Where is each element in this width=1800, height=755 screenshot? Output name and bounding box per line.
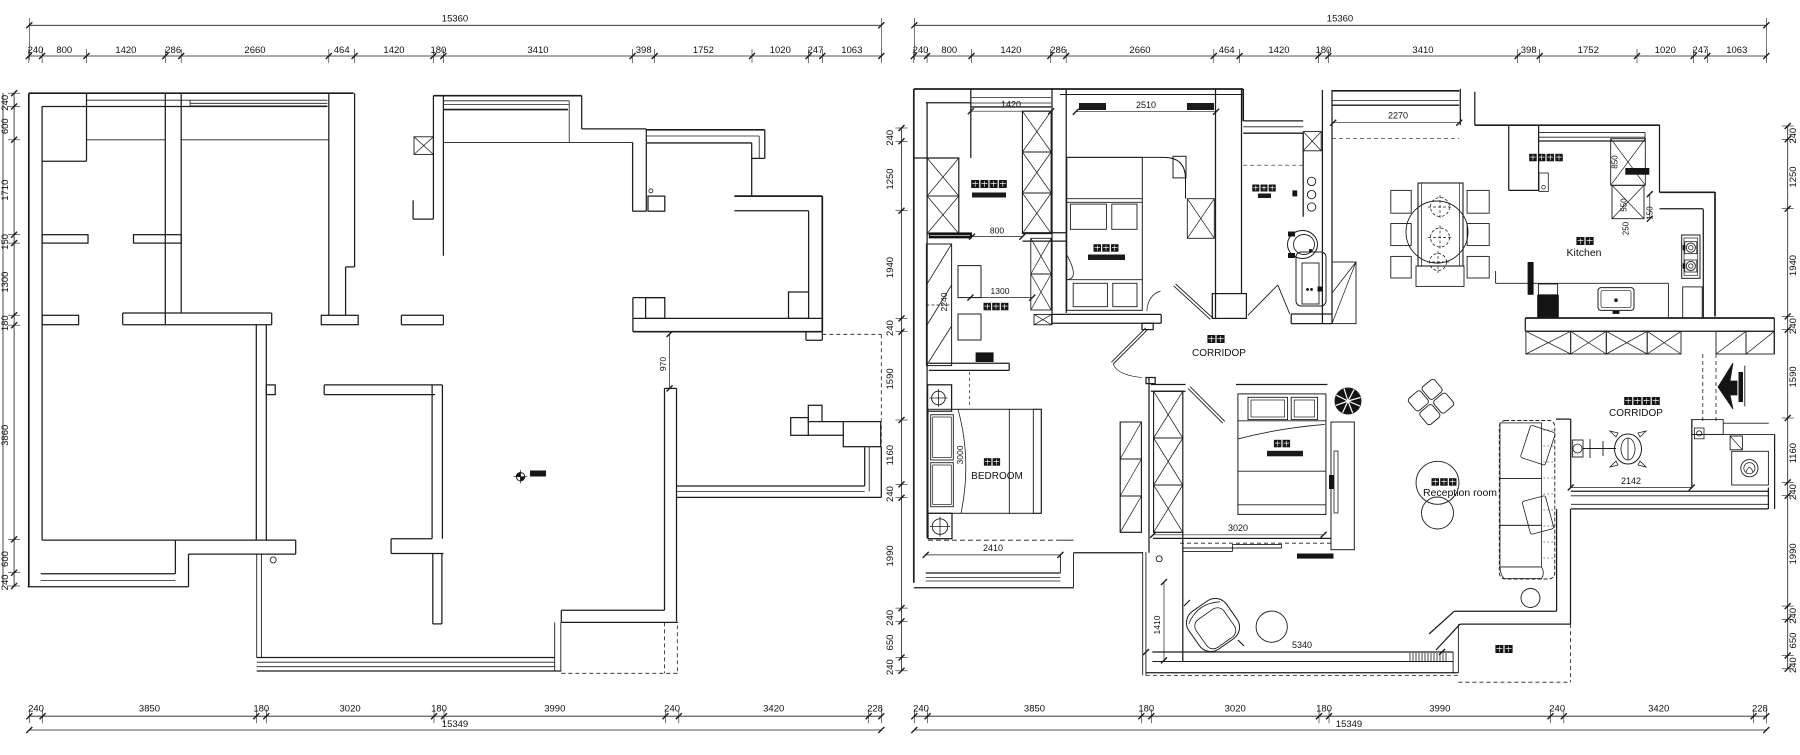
svg-text:15349: 15349 (1336, 719, 1362, 730)
svg-text:240: 240 (664, 704, 680, 715)
svg-text:1063: 1063 (841, 45, 862, 56)
svg-text:1590: 1590 (885, 368, 896, 389)
svg-text:850: 850 (1611, 155, 1620, 169)
svg-text:240: 240 (28, 45, 44, 56)
svg-text:650: 650 (1788, 633, 1799, 649)
svg-text:286: 286 (165, 45, 181, 56)
svg-text:240: 240 (0, 95, 11, 111)
svg-text:240: 240 (913, 704, 929, 715)
svg-text:180: 180 (1315, 45, 1331, 56)
svg-text:1020: 1020 (1655, 45, 1676, 56)
svg-text:3420: 3420 (763, 704, 784, 715)
svg-text:1990: 1990 (885, 545, 896, 566)
svg-text:1420: 1420 (1001, 100, 1021, 110)
svg-text:BEDROOM: BEDROOM (971, 471, 1023, 482)
svg-text:180: 180 (430, 45, 446, 56)
svg-text:228: 228 (867, 704, 883, 715)
svg-text:970: 970 (658, 357, 668, 371)
svg-text:2510: 2510 (1136, 100, 1156, 110)
svg-text:240: 240 (1788, 318, 1799, 334)
svg-text:550: 550 (1620, 198, 1629, 212)
svg-text:600: 600 (0, 118, 11, 134)
svg-text:1300: 1300 (0, 272, 11, 293)
svg-text:240: 240 (1549, 704, 1565, 715)
svg-text:464: 464 (1219, 45, 1235, 56)
svg-text:1020: 1020 (770, 45, 791, 56)
svg-text:1160: 1160 (1788, 443, 1799, 463)
svg-text:1940: 1940 (885, 257, 896, 278)
svg-text:2270: 2270 (1388, 111, 1408, 121)
svg-text:CORRIDOP: CORRIDOP (1609, 408, 1663, 419)
svg-text:1752: 1752 (1578, 45, 1599, 56)
svg-text:600: 600 (0, 551, 11, 567)
svg-text:800: 800 (56, 45, 72, 56)
svg-text:1250: 1250 (885, 168, 896, 189)
svg-text:240: 240 (1788, 128, 1799, 144)
svg-text:464: 464 (334, 45, 350, 56)
svg-text:1940: 1940 (1788, 255, 1799, 276)
svg-text:180: 180 (253, 704, 269, 715)
svg-text:240: 240 (885, 130, 896, 146)
svg-text:240: 240 (1788, 657, 1799, 673)
svg-text:180: 180 (1316, 704, 1332, 715)
svg-text:1710: 1710 (0, 180, 11, 201)
svg-text:228: 228 (1752, 704, 1768, 715)
svg-text:3000: 3000 (955, 445, 965, 464)
svg-text:247: 247 (808, 45, 824, 56)
svg-text:1420: 1420 (1000, 45, 1021, 56)
svg-text:3020: 3020 (340, 704, 361, 715)
svg-text:1410: 1410 (1152, 615, 1162, 634)
svg-text:240: 240 (885, 486, 896, 502)
svg-text:15349: 15349 (442, 719, 468, 730)
svg-text:250: 250 (1622, 221, 1631, 235)
svg-text:2142: 2142 (1621, 476, 1641, 486)
svg-text:3860: 3860 (0, 425, 11, 446)
svg-text:247: 247 (1692, 45, 1708, 56)
svg-text:3990: 3990 (544, 704, 565, 715)
svg-text:180: 180 (0, 315, 11, 331)
svg-text:1590: 1590 (1788, 366, 1799, 387)
svg-text:15360: 15360 (1327, 14, 1353, 25)
svg-text:286: 286 (1050, 45, 1066, 56)
svg-text:1752: 1752 (693, 45, 714, 56)
svg-text:3020: 3020 (1225, 704, 1246, 715)
svg-text:1250: 1250 (1788, 166, 1799, 187)
svg-text:240: 240 (885, 659, 896, 675)
svg-text:650: 650 (885, 635, 896, 651)
svg-text:3020: 3020 (1228, 523, 1248, 533)
svg-text:3410: 3410 (1412, 45, 1433, 56)
svg-text:240: 240 (28, 704, 44, 715)
svg-text:3990: 3990 (1429, 704, 1450, 715)
svg-text:800: 800 (941, 45, 957, 56)
svg-text:240: 240 (0, 574, 11, 590)
svg-text:1300: 1300 (991, 286, 1010, 296)
svg-text:1160: 1160 (885, 445, 896, 465)
svg-text:180: 180 (431, 704, 447, 715)
svg-text:240: 240 (1788, 484, 1799, 500)
svg-text:150: 150 (0, 234, 11, 250)
svg-text:1420: 1420 (1268, 45, 1289, 56)
svg-text:240: 240 (885, 320, 896, 336)
svg-text:2660: 2660 (244, 45, 265, 56)
svg-text:5340: 5340 (1292, 640, 1312, 650)
svg-text:3850: 3850 (1024, 704, 1045, 715)
svg-text:3410: 3410 (527, 45, 548, 56)
svg-text:Kitchen: Kitchen (1566, 247, 1601, 259)
svg-text:1420: 1420 (115, 45, 136, 56)
svg-text:398: 398 (636, 45, 652, 56)
svg-text:CORRIDOP: CORRIDOP (1192, 348, 1246, 359)
svg-text:240: 240 (885, 610, 896, 626)
svg-text:3850: 3850 (139, 704, 160, 715)
svg-text:1063: 1063 (1726, 45, 1747, 56)
svg-text:240: 240 (1788, 608, 1799, 624)
svg-text:2240: 2240 (939, 292, 949, 311)
svg-text:800: 800 (990, 225, 1004, 235)
svg-text:2410: 2410 (983, 543, 1003, 553)
svg-text:15360: 15360 (442, 14, 468, 25)
svg-text:398: 398 (1521, 45, 1537, 56)
svg-text:1990: 1990 (1788, 543, 1799, 564)
svg-text:3420: 3420 (1648, 704, 1669, 715)
svg-text:2660: 2660 (1129, 45, 1150, 56)
svg-text:240: 240 (913, 45, 929, 56)
svg-text:1420: 1420 (383, 45, 404, 56)
svg-text:180: 180 (1138, 704, 1154, 715)
